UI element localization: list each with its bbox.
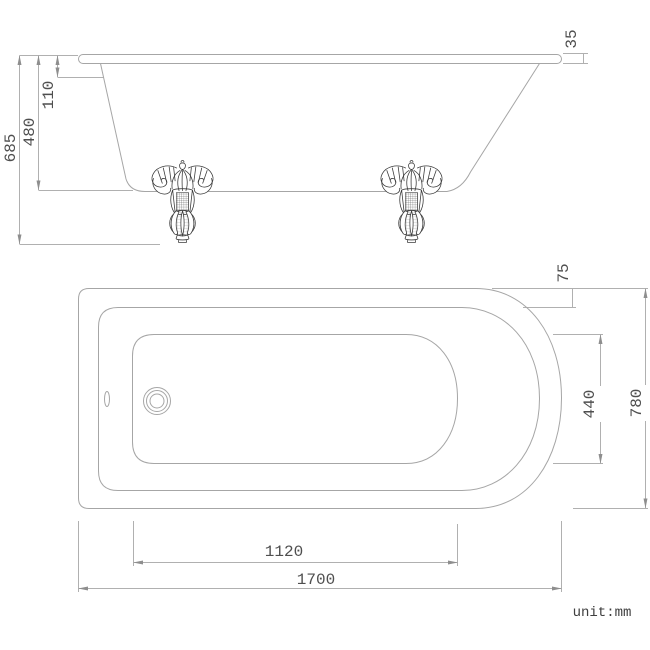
unit-note: unit:mm <box>573 606 632 620</box>
plan-basin-outline <box>133 335 458 464</box>
dimension-label-overall-length: 1700 <box>297 572 335 588</box>
dimension-label-overall-height: 685 <box>3 134 19 163</box>
plan-view <box>79 289 649 593</box>
technical-drawing-canvas: 685 480 110 35 75 440 780 1120 1700 unit… <box>0 0 650 650</box>
bathtub-rim-outline <box>79 55 562 64</box>
drain-icon <box>144 388 171 415</box>
claw-foot-left-icon <box>150 160 215 242</box>
side-elevation-view <box>20 54 589 245</box>
dimension-label-base-length: 1120 <box>265 544 303 560</box>
dimension-label-rim-to-base-height: 480 <box>22 118 38 147</box>
dimension-label-rim-thickness: 35 <box>564 29 580 48</box>
claw-foot-right-icon <box>379 160 444 242</box>
dimension-label-deck-width: 75 <box>556 263 572 282</box>
dimension-label-rim-drop: 110 <box>41 81 57 110</box>
overflow-icon <box>105 392 110 407</box>
bathtub-drawing <box>0 0 650 650</box>
dimension-label-overall-width: 780 <box>629 389 645 418</box>
dimension-label-basin-width: 440 <box>582 390 598 419</box>
